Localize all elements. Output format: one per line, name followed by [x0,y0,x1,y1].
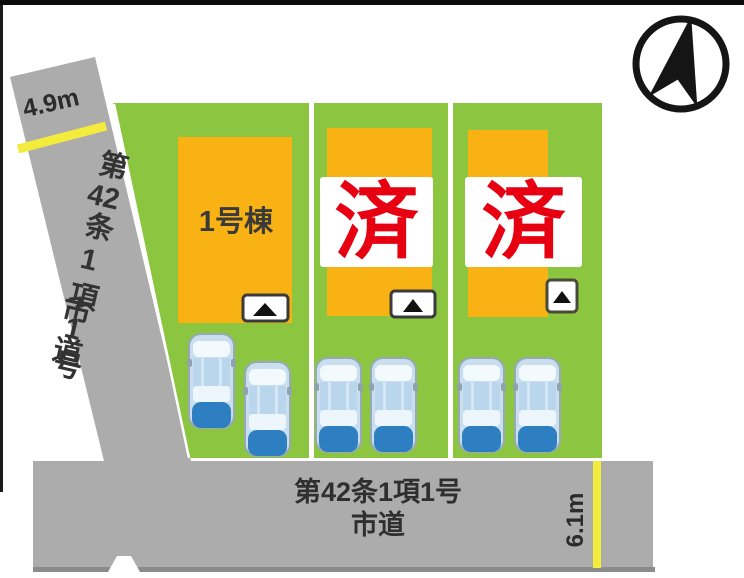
car-icon [243,362,292,456]
bottom-road-name-label: 第42条1項1号 [258,477,498,508]
car-icon [314,358,363,452]
building-1-label: 1号棟 [180,206,292,239]
lot-divider-1-2 [309,103,314,458]
car-icon [187,334,236,428]
sold-overlay-lot-2: 済 [320,177,433,267]
north-compass-icon [636,11,726,109]
entrance-marker-icon-3 [547,280,577,312]
image-border-top [0,0,744,5]
sold-label-lot-2: 済 [334,180,418,264]
entrance-marker-icon-1 [243,295,288,321]
lot-divider-2-3 [448,103,453,458]
car-icon [513,358,562,452]
width-marker-6-1m [593,461,601,568]
bottom-road-width-label: 6.1m [562,465,590,575]
car-icon [369,358,418,452]
sold-overlay-lot-3: 済 [465,177,582,267]
car-icon [457,358,506,452]
site-plan: 4.9m 第42条1項1号 市道 1号棟 済 済 第42条1項1号 市道 6.1… [0,0,744,578]
sold-label-lot-3: 済 [481,180,565,264]
image-border-left [0,5,3,492]
entrance-marker-icon-2 [391,291,435,317]
bottom-road-type-label: 市道 [258,510,498,541]
